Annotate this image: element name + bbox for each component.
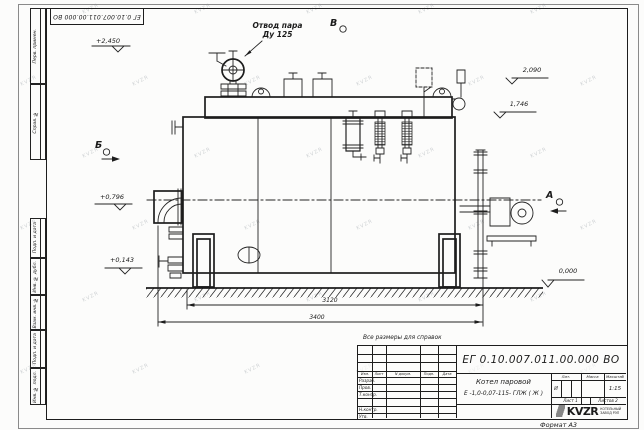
row-razrab: Разраб. bbox=[359, 377, 386, 384]
col-ndokum: N докум. bbox=[386, 371, 420, 377]
spring-icon bbox=[556, 405, 565, 417]
product-title: Котел паровой bbox=[456, 375, 551, 389]
row-prov: Пров. bbox=[359, 384, 386, 391]
doc-number: ЕГ 0.10.007.011.00.000 ВО bbox=[456, 346, 626, 373]
level-mark-0143: +0,143 bbox=[102, 256, 142, 264]
sheet-number: Лист 1 bbox=[551, 397, 590, 404]
col-podp: Подп. bbox=[420, 371, 438, 377]
dimension-3400: 3400 bbox=[292, 314, 342, 321]
view-arrow-a: А bbox=[546, 190, 553, 201]
col-data: Дата bbox=[438, 371, 456, 377]
steam-outlet-callout: Отвод пара Ду 125 bbox=[240, 22, 315, 39]
format-label: Формат А3 bbox=[540, 421, 577, 429]
row-utv: Утв. bbox=[359, 413, 386, 420]
row-nkontr: Н.контр. bbox=[359, 406, 386, 413]
row-blank bbox=[359, 398, 386, 406]
arrowheads bbox=[112, 50, 558, 324]
logo-subtext: КОТЕЛЬНЫЙ ЗАВОД РЭП bbox=[600, 407, 621, 415]
level-mark-0796: +0,796 bbox=[92, 193, 132, 201]
row-tkontr: Т.контр. bbox=[359, 391, 386, 398]
lit-value: И bbox=[551, 380, 561, 397]
drawing-sheet: KVZRKVZRKVZRKVZRKVZRKVZRKVZRKVZRKVZRKVZR… bbox=[0, 0, 644, 430]
company-logo: KVZR КОТЕЛЬНЫЙ ЗАВОД РЭП bbox=[551, 404, 626, 418]
mass-label: Масса bbox=[581, 373, 604, 380]
level-mark-0000: 0,000 bbox=[548, 267, 588, 275]
level-mark-2090: 2,090 bbox=[512, 66, 552, 74]
level-mark-2450: +2,450 bbox=[88, 37, 128, 45]
dimension-3120: 3120 bbox=[305, 297, 355, 304]
view-arrow-b: Б bbox=[95, 140, 102, 151]
view-label-v: В bbox=[330, 18, 337, 29]
thin-linework bbox=[92, 26, 584, 326]
logo-text: KVZR bbox=[567, 405, 598, 418]
sheets-total: Листов 2 bbox=[590, 397, 626, 404]
scale-value: 1:15 bbox=[604, 380, 626, 397]
level-mark-1746: 1,746 bbox=[499, 100, 539, 108]
title-block: ЕГ 0.10.007.011.00.000 ВО Котел паровой … bbox=[357, 345, 628, 420]
scale-label: Масштаб bbox=[604, 373, 626, 380]
product-designation: Е -1,0-0,07-115- ГЛЖ ( Ж ) bbox=[456, 388, 551, 400]
reference-note: Все размеры для справок bbox=[363, 335, 442, 341]
lit-label: Лит. bbox=[551, 373, 581, 380]
